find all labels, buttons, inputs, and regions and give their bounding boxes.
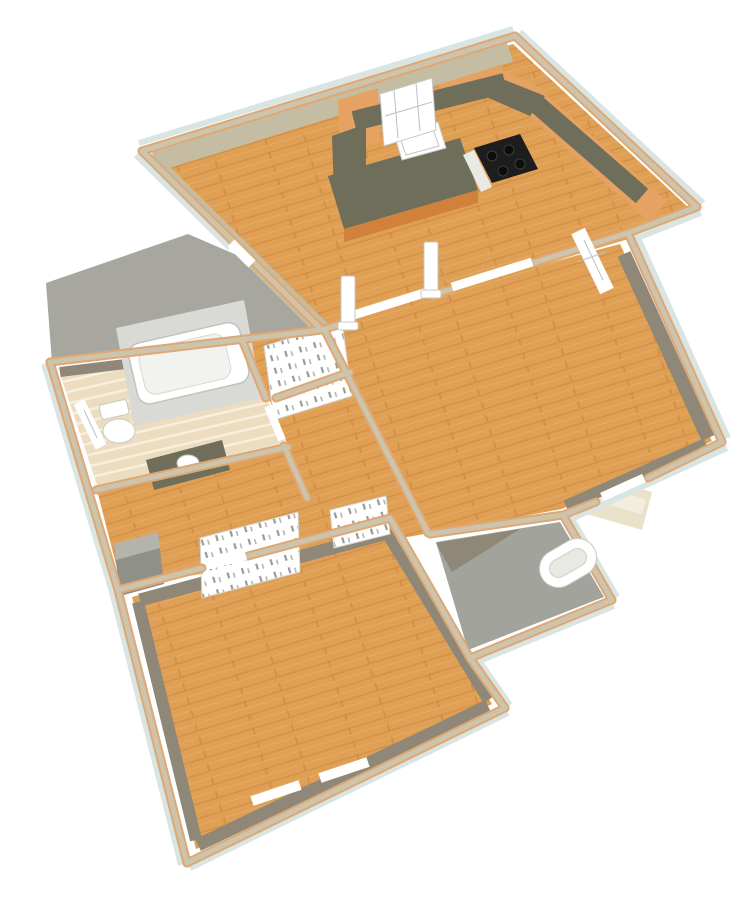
entry-column-left	[338, 276, 358, 330]
floorplan-3d-view	[0, 0, 745, 906]
entry-column-right	[421, 242, 441, 298]
floorplan-render-canvas	[0, 0, 745, 906]
